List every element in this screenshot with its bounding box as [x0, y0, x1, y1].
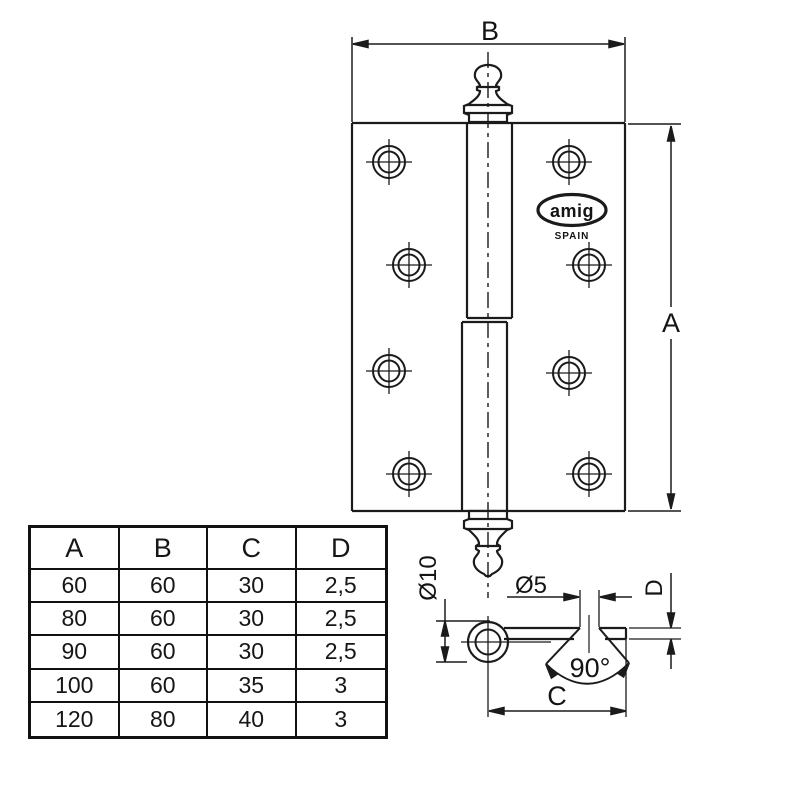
size-table-cell: 60: [31, 570, 120, 603]
hinge-technical-drawing-page: amig SPAIN B A: [0, 0, 800, 800]
screw-hole: [366, 139, 412, 185]
hinge-bottom-view: 90° Ø10 Ø5: [415, 555, 681, 717]
arrowhead: [668, 494, 675, 509]
size-table-cell: 60: [120, 670, 209, 703]
size-table-cell: 60: [120, 603, 209, 636]
size-table-cell: 80: [120, 703, 209, 736]
screw-hole: [566, 451, 612, 497]
arrowhead: [489, 708, 504, 715]
size-table-header: A: [31, 528, 120, 570]
dim-label-thickness: D: [641, 579, 668, 596]
size-table-cell: 2,5: [297, 570, 386, 603]
arrowhead: [442, 647, 449, 662]
size-table-cell: 30: [208, 570, 297, 603]
dim-label-hole-diameter: Ø5: [515, 572, 547, 599]
screw-hole: [546, 139, 592, 185]
countersink-symbol: 90°: [546, 615, 629, 684]
dimension-height-a: A: [628, 124, 681, 511]
size-table-cell: 30: [208, 603, 297, 636]
brand-logo: amig SPAIN: [538, 195, 606, 243]
brand-logo-text: amig: [550, 201, 594, 221]
size-table-cell: 120: [31, 703, 120, 736]
countersink-angle-label: 90°: [570, 653, 611, 683]
size-table: A B C D 60 60 30 2,5 80 60 30 2,5 90 60 …: [28, 525, 388, 739]
size-table-cell: 80: [31, 603, 120, 636]
dim-label-a: A: [662, 308, 680, 338]
dim-label-leaf-width: C: [547, 681, 567, 711]
dimension-thickness-d: D: [629, 573, 681, 669]
size-table-cell: 60: [120, 636, 209, 669]
brand-country-text: SPAIN: [555, 231, 590, 242]
size-table-cell: 100: [31, 670, 120, 703]
screw-hole: [386, 242, 432, 288]
screw-hole: [546, 350, 592, 396]
arrowhead: [619, 663, 630, 677]
dim-label-b: B: [481, 16, 499, 46]
size-table-cell: 30: [208, 636, 297, 669]
hinge-barrel: [462, 123, 512, 511]
screw-hole: [366, 348, 412, 394]
arrowhead: [600, 594, 615, 601]
barrel-section: [461, 616, 551, 717]
arrowhead: [668, 126, 675, 141]
arrowhead: [442, 621, 449, 636]
size-table-cell: 60: [120, 570, 209, 603]
screw-hole: [386, 451, 432, 497]
size-table-cell: 35: [208, 670, 297, 703]
size-table-cell: 3: [297, 703, 386, 736]
arrowhead: [609, 41, 624, 48]
size-table-cell: 2,5: [297, 603, 386, 636]
arrowhead: [564, 594, 579, 601]
arrowhead: [611, 708, 626, 715]
size-table-cell: 3: [297, 670, 386, 703]
dim-label-pin-diameter: Ø10: [415, 555, 442, 600]
size-table-header: D: [297, 528, 386, 570]
size-table-cell: 40: [208, 703, 297, 736]
screw-hole: [566, 242, 612, 288]
hinge-front-view: amig SPAIN: [352, 52, 625, 598]
size-table-header: C: [208, 528, 297, 570]
size-table-cell: 90: [31, 636, 120, 669]
size-table-cell: 2,5: [297, 636, 386, 669]
arrowhead: [353, 41, 368, 48]
dimension-hole-diameter: Ø5: [507, 572, 632, 627]
size-table-header: B: [120, 528, 209, 570]
